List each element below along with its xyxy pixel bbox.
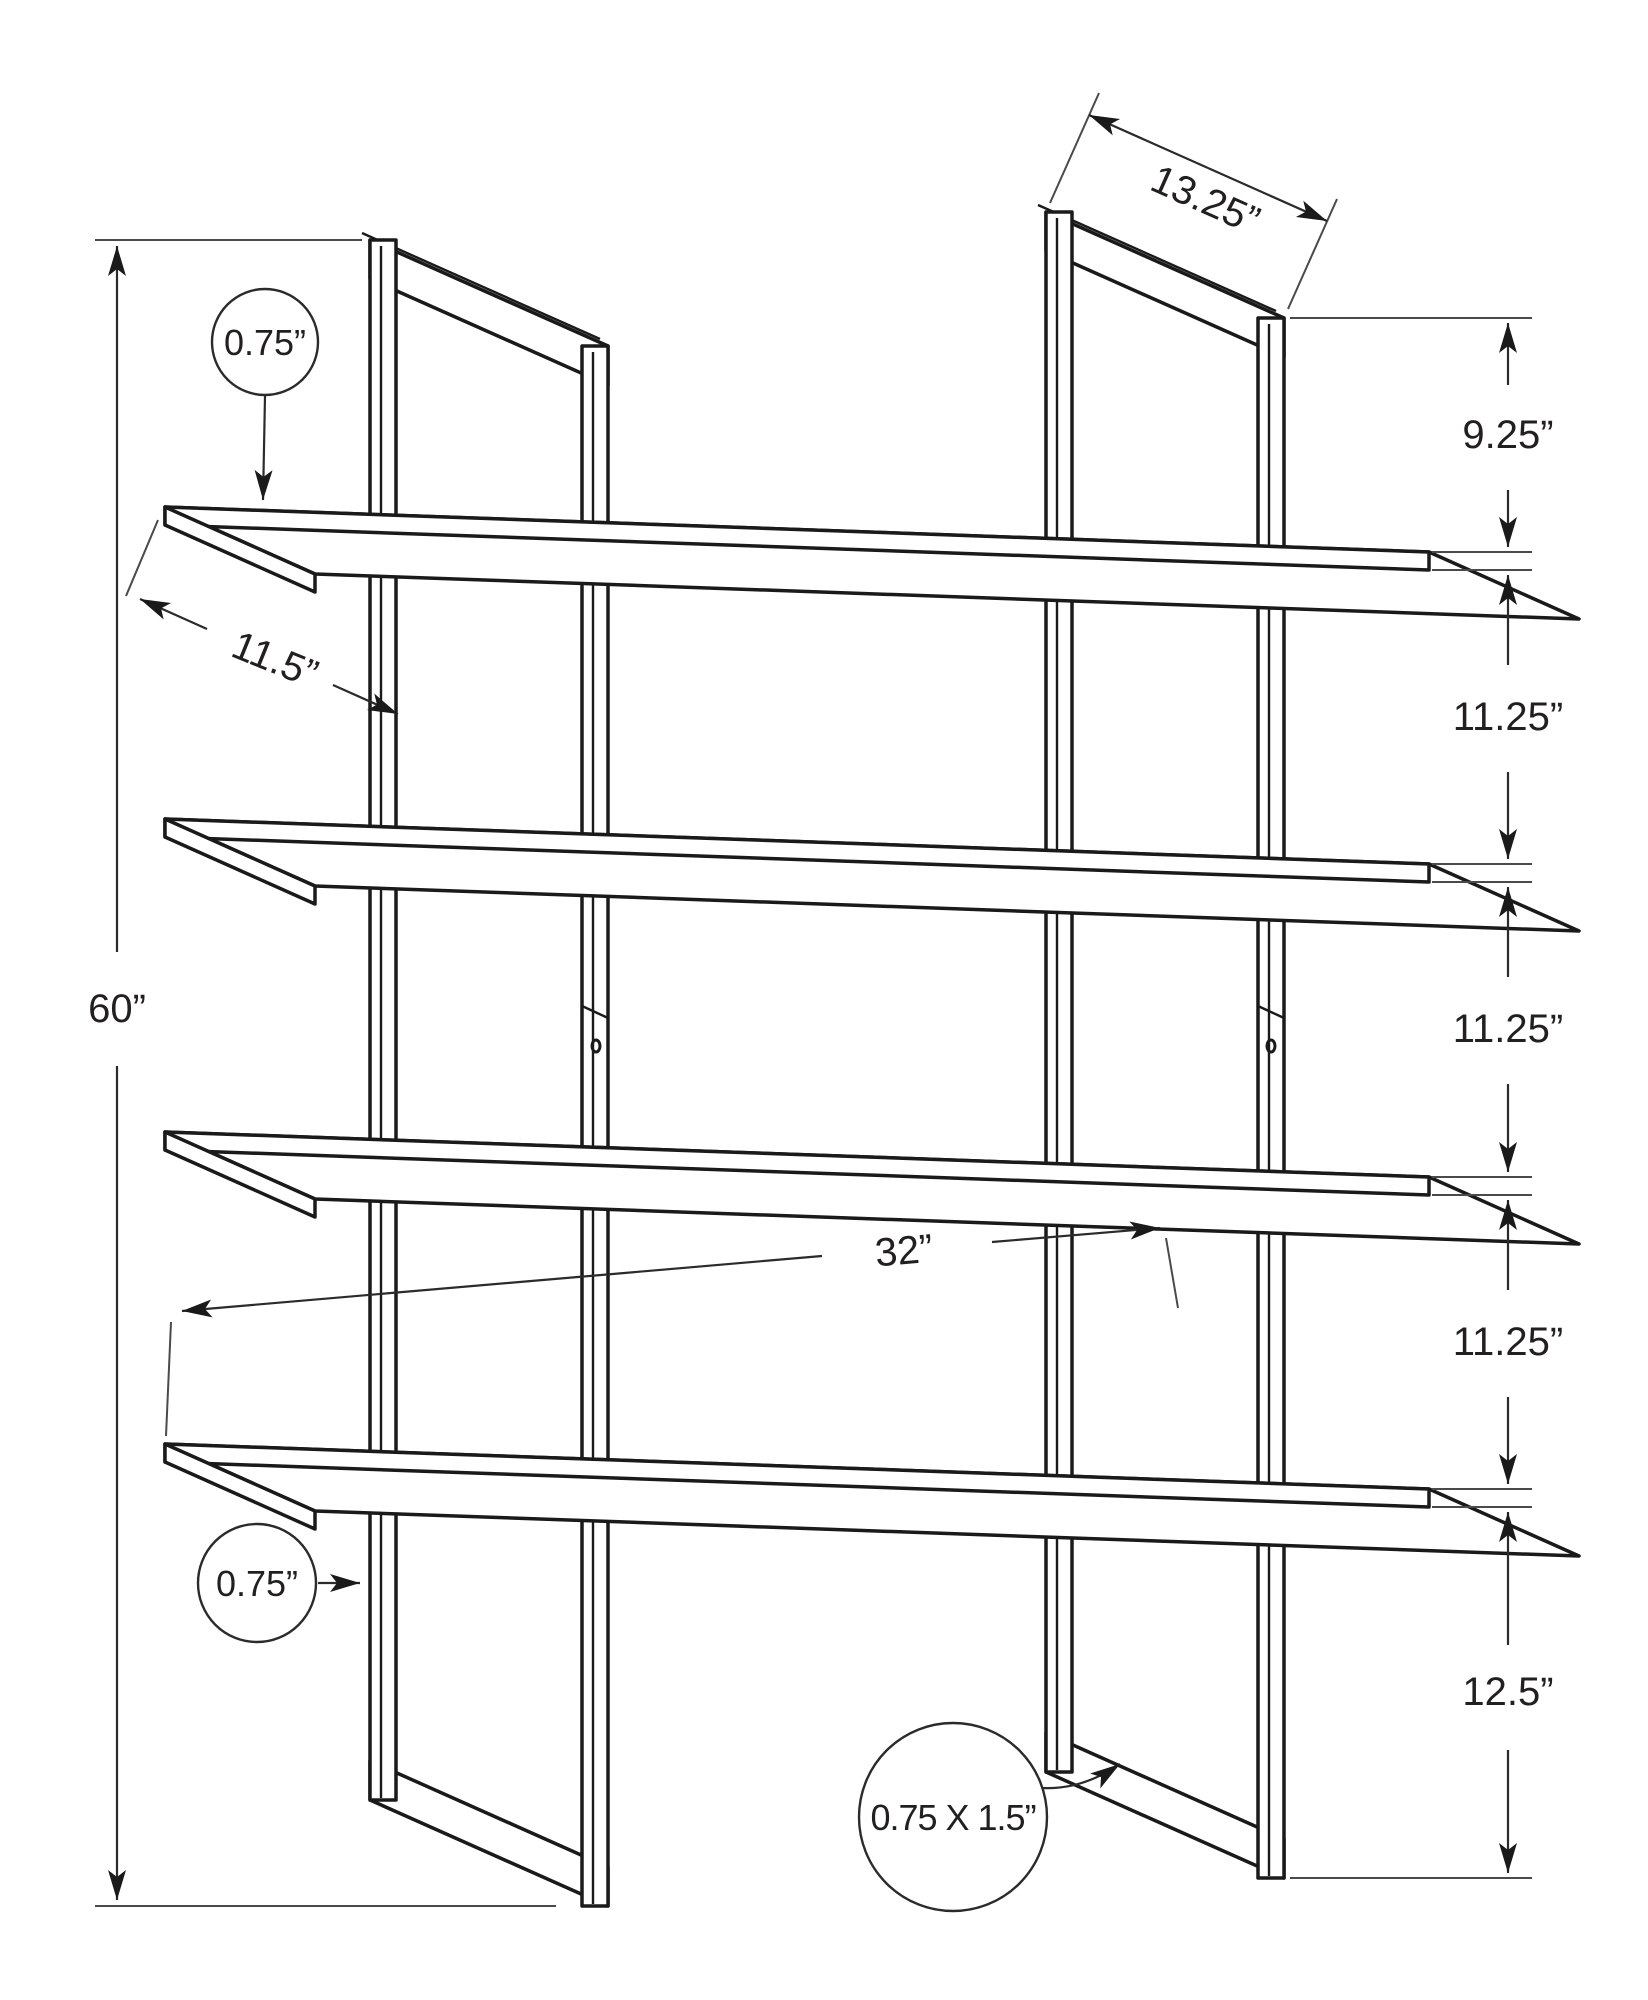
dim-label-11-25-b: 11.25” [1453, 1007, 1563, 1051]
right-frame [1038, 205, 1284, 1878]
dim-label-11-25-c: 11.25” [1453, 1320, 1563, 1364]
dim-label-12-5: 12.5” [1462, 1670, 1553, 1714]
dim-label-11-25-a: 11.25” [1453, 695, 1563, 739]
callout-label-shelf-thickness: 0.75” [224, 322, 306, 363]
diagram-page: 13.25” 9.25” 11.25” 11.25” 11.25” 12.5” [0, 0, 1648, 2000]
left-frame [362, 233, 608, 1906]
callout-shelf-thickness: 0.75” [212, 289, 318, 500]
dim-overall-height: 60” [88, 240, 556, 1906]
bookcase-dimension-drawing: 13.25” 9.25” 11.25” 11.25” 11.25” 12.5” [0, 0, 1648, 2000]
dim-label-top-depth: 13.25” [1145, 157, 1267, 243]
dim-label-height: 60” [88, 987, 146, 1031]
callout-label-post-width: 0.75” [216, 1563, 298, 1604]
dim-label-shelf-depth: 11.5” [226, 623, 324, 697]
callout-label-frame-tube: 0.75 X 1.5” [870, 1797, 1035, 1838]
dim-label-9-25: 9.25” [1462, 413, 1553, 457]
dim-label-shelf-span: 32” [873, 1227, 934, 1276]
dim-shelf-span: 32” [166, 1227, 1178, 1436]
callout-post-width: 0.75” [198, 1524, 360, 1642]
